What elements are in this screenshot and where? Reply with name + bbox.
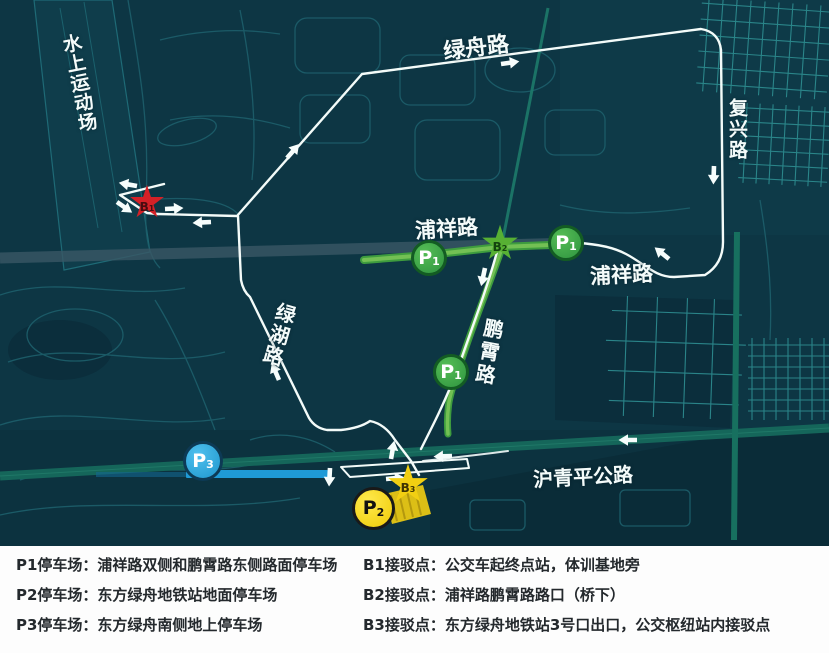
- b3-shuttle-point-marker: B3: [387, 463, 429, 505]
- legend-item-p2: P2停车场：东方绿舟地铁站地面停车场: [16, 587, 337, 604]
- legend-item-p3: P3停车场：东方绿舟南侧地上停车场: [16, 617, 337, 634]
- road-label-fuxing: 复兴路: [724, 98, 751, 161]
- legend: P1停车场：浦祥路双侧和鹏霄路东侧路面停车场 P2停车场：东方绿舟地铁站地面停车…: [0, 546, 829, 653]
- p1-parking-marker-west: P1: [411, 240, 447, 276]
- b2-marker-number: 2: [502, 244, 508, 253]
- legend-item-b2: B2接驳点：浦祥路鹏霄路路口（桥下）: [363, 587, 770, 604]
- p1-parking-marker-south: P1: [433, 354, 469, 390]
- legend-parking-column: P1停车场：浦祥路双侧和鹏霄路东侧路面停车场 P2停车场：东方绿舟地铁站地面停车…: [16, 557, 337, 634]
- p1-marker-letter: P: [555, 234, 569, 253]
- p1-marker-letter: P: [418, 249, 432, 268]
- legend-item-b3: B3接驳点：东方绿舟地铁站3号口出口，公交枢纽站内接驳点: [363, 617, 770, 634]
- p1-marker-letter: P: [440, 363, 454, 382]
- p3-marker-number: 3: [206, 459, 214, 470]
- p1-marker-number: 1: [454, 370, 462, 381]
- p2-parking-marker: P2: [352, 487, 395, 530]
- b1-shuttle-point-marker: B1: [129, 184, 165, 220]
- b2-shuttle-point-marker: B2: [481, 224, 519, 262]
- b1-marker-letter: B: [140, 200, 149, 214]
- b1-marker-number: 1: [149, 204, 155, 213]
- legend-shuttle-column: B1接驳点：公交车起终点站，体训基地旁 B2接驳点：浦祥路鹏霄路路口（桥下） B…: [363, 557, 770, 634]
- road-label-huqingping: 沪青平公路: [532, 458, 633, 492]
- b3-marker-letter: B: [401, 481, 410, 495]
- map-canvas: 水上运动场 绿舟路 复兴路 浦祥路 浦祥路 鹏霄路 绿湖路 沪青平公路 B1 B…: [0, 0, 829, 546]
- shuttle-parking-map-infographic: 水上运动场 绿舟路 复兴路 浦祥路 浦祥路 鹏霄路 绿湖路 沪青平公路 B1 B…: [0, 0, 829, 653]
- legend-item-p1: P1停车场：浦祥路双侧和鹏霄路东侧路面停车场: [16, 557, 337, 574]
- fuxing-road-band: [734, 232, 737, 540]
- legend-item-b1: B1接驳点：公交车起终点站，体训基地旁: [363, 557, 770, 574]
- p1-marker-number: 1: [569, 241, 577, 252]
- road-label-puxiang-east: 浦祥路: [589, 257, 653, 290]
- p1-parking-marker-east: P1: [548, 225, 584, 261]
- p3-parking-marker: P3: [183, 441, 223, 481]
- b2-marker-letter: B: [493, 240, 502, 254]
- p1-marker-number: 1: [432, 256, 440, 267]
- p2-marker-number: 2: [377, 507, 385, 518]
- p2-marker-letter: P: [363, 499, 377, 518]
- p3-marker-letter: P: [192, 452, 206, 471]
- b3-marker-number: 3: [410, 485, 416, 494]
